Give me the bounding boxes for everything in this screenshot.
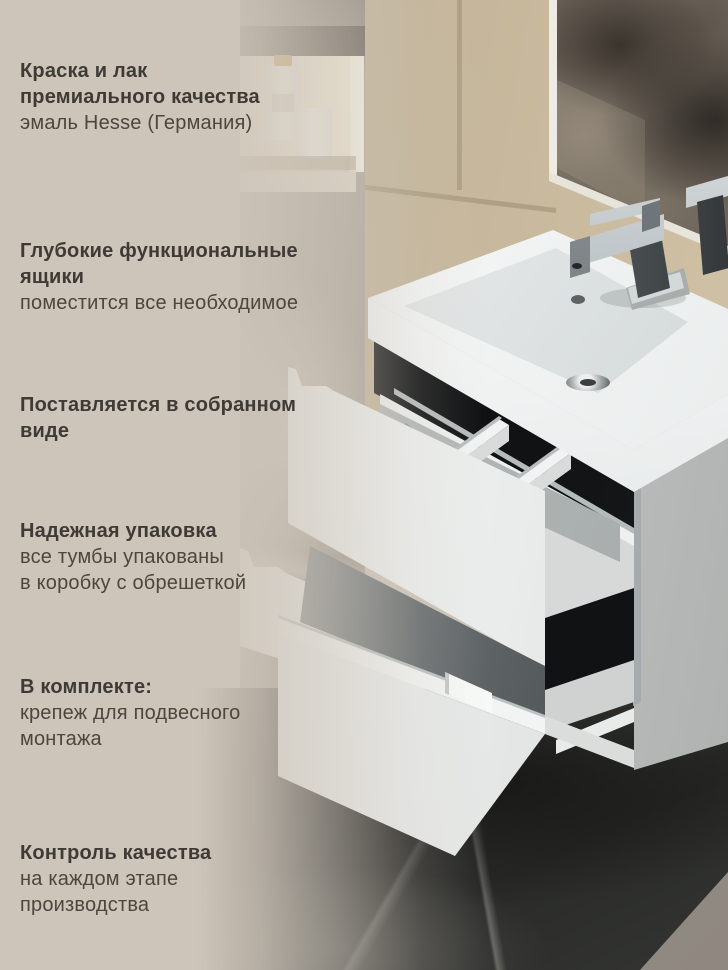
feature-assembled: Поставляется в собранном виде	[20, 392, 330, 444]
feature-title-line: В комплекте:	[20, 674, 330, 700]
feature-desc-line: все тумбы упакованы	[20, 544, 330, 570]
feature-packaging: Надежная упаковка все тумбы упакованы в …	[20, 518, 330, 596]
feature-title-line: Краска и лак	[20, 58, 330, 84]
feature-included-hardware: В комплекте: крепеж для подвесного монта…	[20, 674, 330, 752]
feature-deep-drawers: Глубокие функциональные ящики поместится…	[20, 238, 330, 316]
feature-desc-line: в коробку с обрешеткой	[20, 570, 330, 596]
beige-fade-overlay	[0, 0, 728, 970]
feature-desc-line: монтажа	[20, 726, 330, 752]
feature-title-line: Контроль качества	[20, 840, 330, 866]
feature-desc-line: поместится все необходимое	[20, 290, 330, 316]
feature-desc-line: на каждом этапе	[20, 866, 330, 892]
product-infographic: Краска и лак премиального качества эмаль…	[0, 0, 728, 970]
feature-title-line: Глубокие функциональные	[20, 238, 330, 264]
feature-quality-control: Контроль качества на каждом этапе произв…	[20, 840, 330, 918]
feature-desc-line: эмаль Hesse (Германия)	[20, 110, 330, 136]
feature-title-line: виде	[20, 418, 330, 444]
feature-desc-line: производства	[20, 892, 330, 918]
feature-title-line: премиального качества	[20, 84, 330, 110]
feature-title-line: ящики	[20, 264, 330, 290]
feature-title-line: Надежная упаковка	[20, 518, 330, 544]
feature-paint-quality: Краска и лак премиального качества эмаль…	[20, 58, 330, 136]
feature-title-line: Поставляется в собранном	[20, 392, 330, 418]
feature-desc-line: крепеж для подвесного	[20, 700, 330, 726]
